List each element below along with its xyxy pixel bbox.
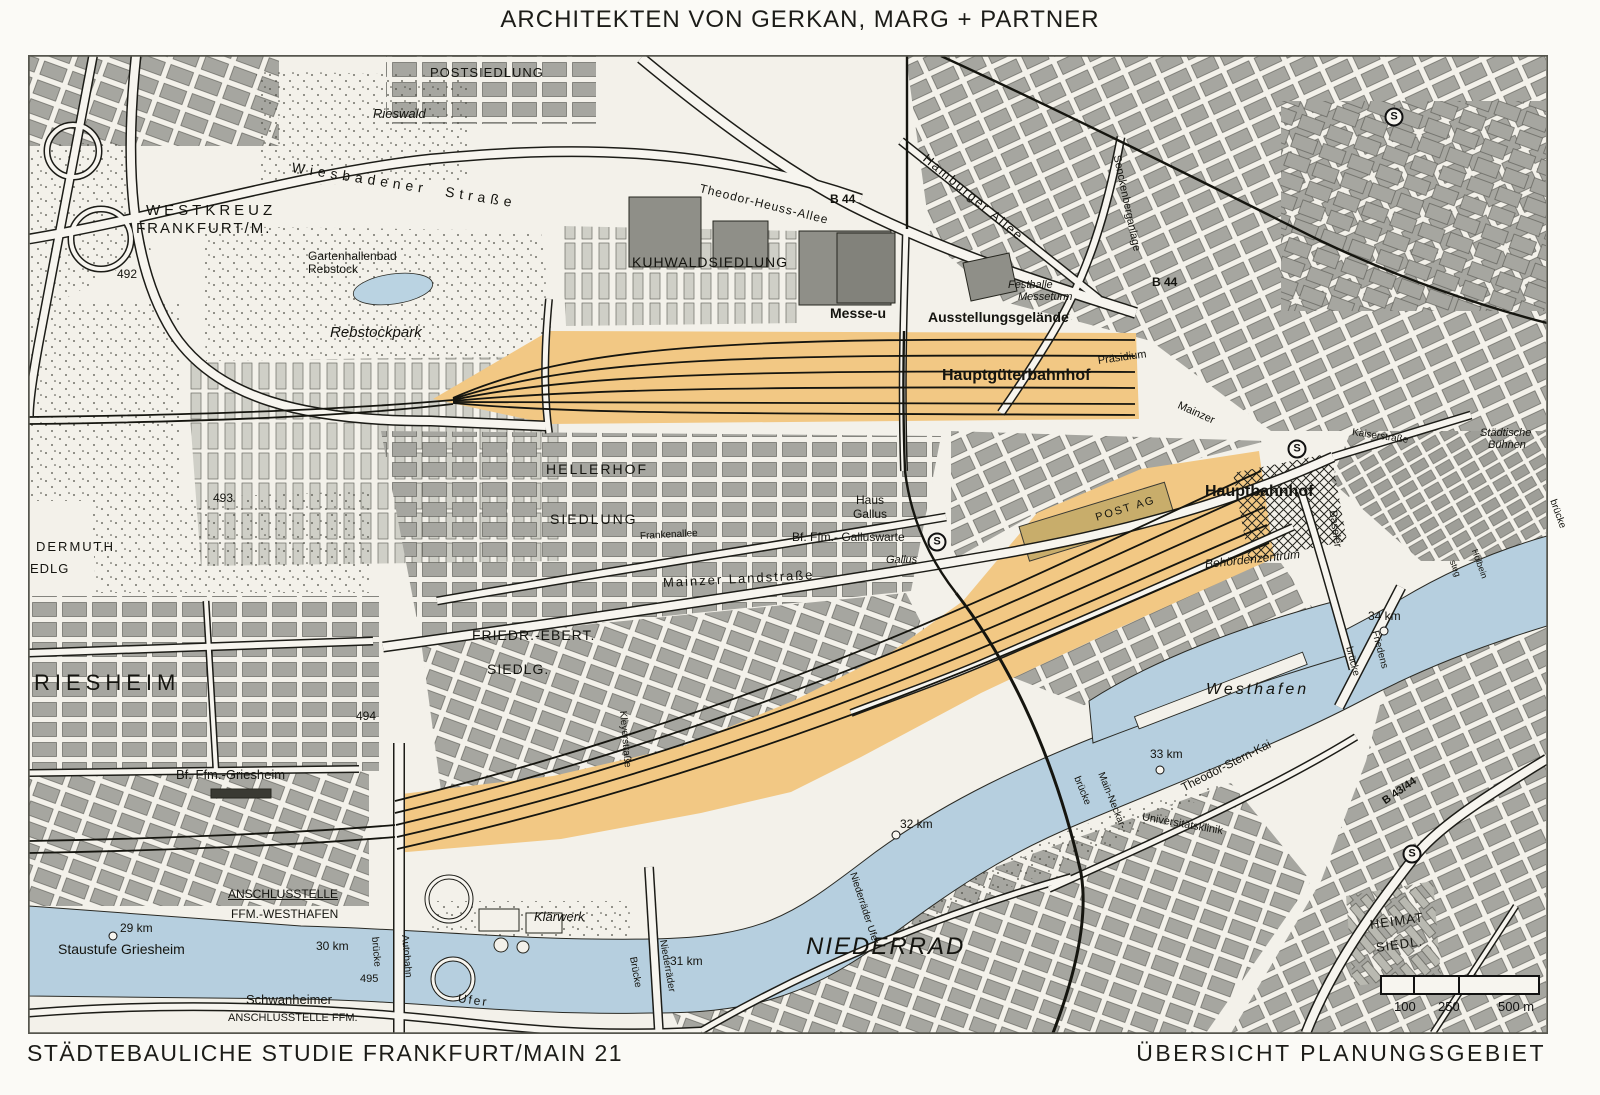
scale-label-100: 100 — [1394, 999, 1416, 1014]
klaerwerk-basin — [517, 941, 529, 953]
map-drawing — [29, 56, 1547, 1033]
klaerwerk-tank — [479, 909, 519, 931]
griesheim-station-building — [211, 789, 271, 798]
scale-bar-body — [1380, 975, 1540, 995]
scale-label-250: 250 — [1438, 999, 1460, 1014]
page: { "header": { "title": "ARCHITEKTEN VON … — [0, 0, 1600, 1095]
map-label: brücke — [1547, 498, 1567, 530]
scale-bar-divider — [1413, 977, 1415, 993]
map-canvas — [28, 55, 1548, 1034]
scale-bar-divider — [1458, 977, 1460, 993]
messe-hall — [713, 221, 768, 267]
klaerwerk-tank — [526, 913, 562, 933]
study-title: STÄDTEBAULICHE STUDIE FRANKFURT/MAIN 21 — [27, 1040, 623, 1067]
page-title: ARCHITEKTEN VON GERKAN, MARG + PARTNER — [0, 6, 1600, 34]
scale-label-500: 500 m — [1498, 999, 1534, 1014]
messe-hall — [837, 233, 895, 303]
scale-bar: 100 250 500 m — [1380, 975, 1544, 1017]
sheet-subtitle: ÜBERSICHT PLANUNGSGEBIET — [1136, 1040, 1546, 1067]
messe-hall — [629, 197, 701, 267]
klaerwerk-basin — [494, 938, 508, 952]
